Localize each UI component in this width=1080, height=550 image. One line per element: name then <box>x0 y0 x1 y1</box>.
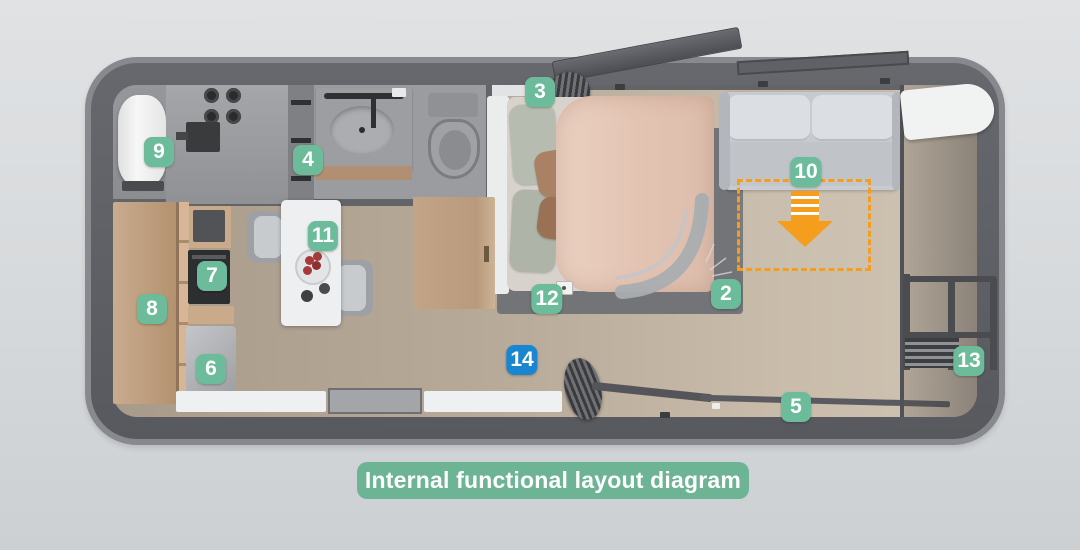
stove-burner <box>204 88 219 103</box>
cup <box>301 290 313 302</box>
door-hinge <box>758 81 768 87</box>
fruit <box>303 266 312 275</box>
water-heater-base <box>122 181 164 191</box>
sofa-cushion <box>728 95 810 141</box>
diagram-caption: Internal functional layout diagram <box>357 462 749 499</box>
kitchen-counter <box>166 85 288 204</box>
countertop-appliance <box>186 122 220 152</box>
cup <box>319 283 330 294</box>
stair-frame <box>990 278 997 370</box>
fruit <box>313 252 322 261</box>
door-hinge <box>615 84 625 90</box>
door-hinge <box>660 412 670 418</box>
bottom-window-band <box>424 391 562 412</box>
wardrobe-cabinet <box>113 202 179 404</box>
expansion-arrow-head <box>777 221 833 247</box>
sofa-cushion <box>812 95 894 141</box>
bottom-window-band <box>176 391 326 412</box>
folding-stairs <box>905 338 959 368</box>
blanket-drape <box>598 192 738 300</box>
shelf-bar <box>291 138 311 143</box>
appliance-arm <box>176 132 188 140</box>
toilet-seat <box>439 130 471 170</box>
door-latch <box>712 403 720 409</box>
sofa-armrest <box>719 92 730 190</box>
side-cabinet <box>413 197 495 309</box>
fruit <box>312 261 321 270</box>
faucet-stem <box>371 96 376 128</box>
water-heater <box>118 95 166 187</box>
cabinet-handle <box>484 246 489 262</box>
wood-shelf <box>188 306 234 324</box>
sink-drain <box>359 127 365 133</box>
shelf-bar <box>291 100 311 105</box>
bottom-door-panel <box>328 388 422 414</box>
dining-chair-seat <box>338 265 366 311</box>
shelf-bar <box>291 176 311 181</box>
microwave <box>193 210 225 242</box>
container-home-floorplan: 234567891011121314 Internal functional l… <box>0 0 1080 550</box>
stove-burner <box>226 109 241 124</box>
dining-chair-seat <box>254 216 282 258</box>
oven-handle <box>192 255 226 259</box>
wall-dispenser <box>392 88 406 97</box>
toilet-tank <box>428 93 478 117</box>
door-hinge <box>880 78 890 84</box>
washing-machine <box>186 326 236 400</box>
expansion-arrow-shaft <box>791 191 819 221</box>
stove-burner <box>226 88 241 103</box>
vanity-wood-edge <box>316 166 412 180</box>
floor-socket-dot <box>562 286 566 290</box>
